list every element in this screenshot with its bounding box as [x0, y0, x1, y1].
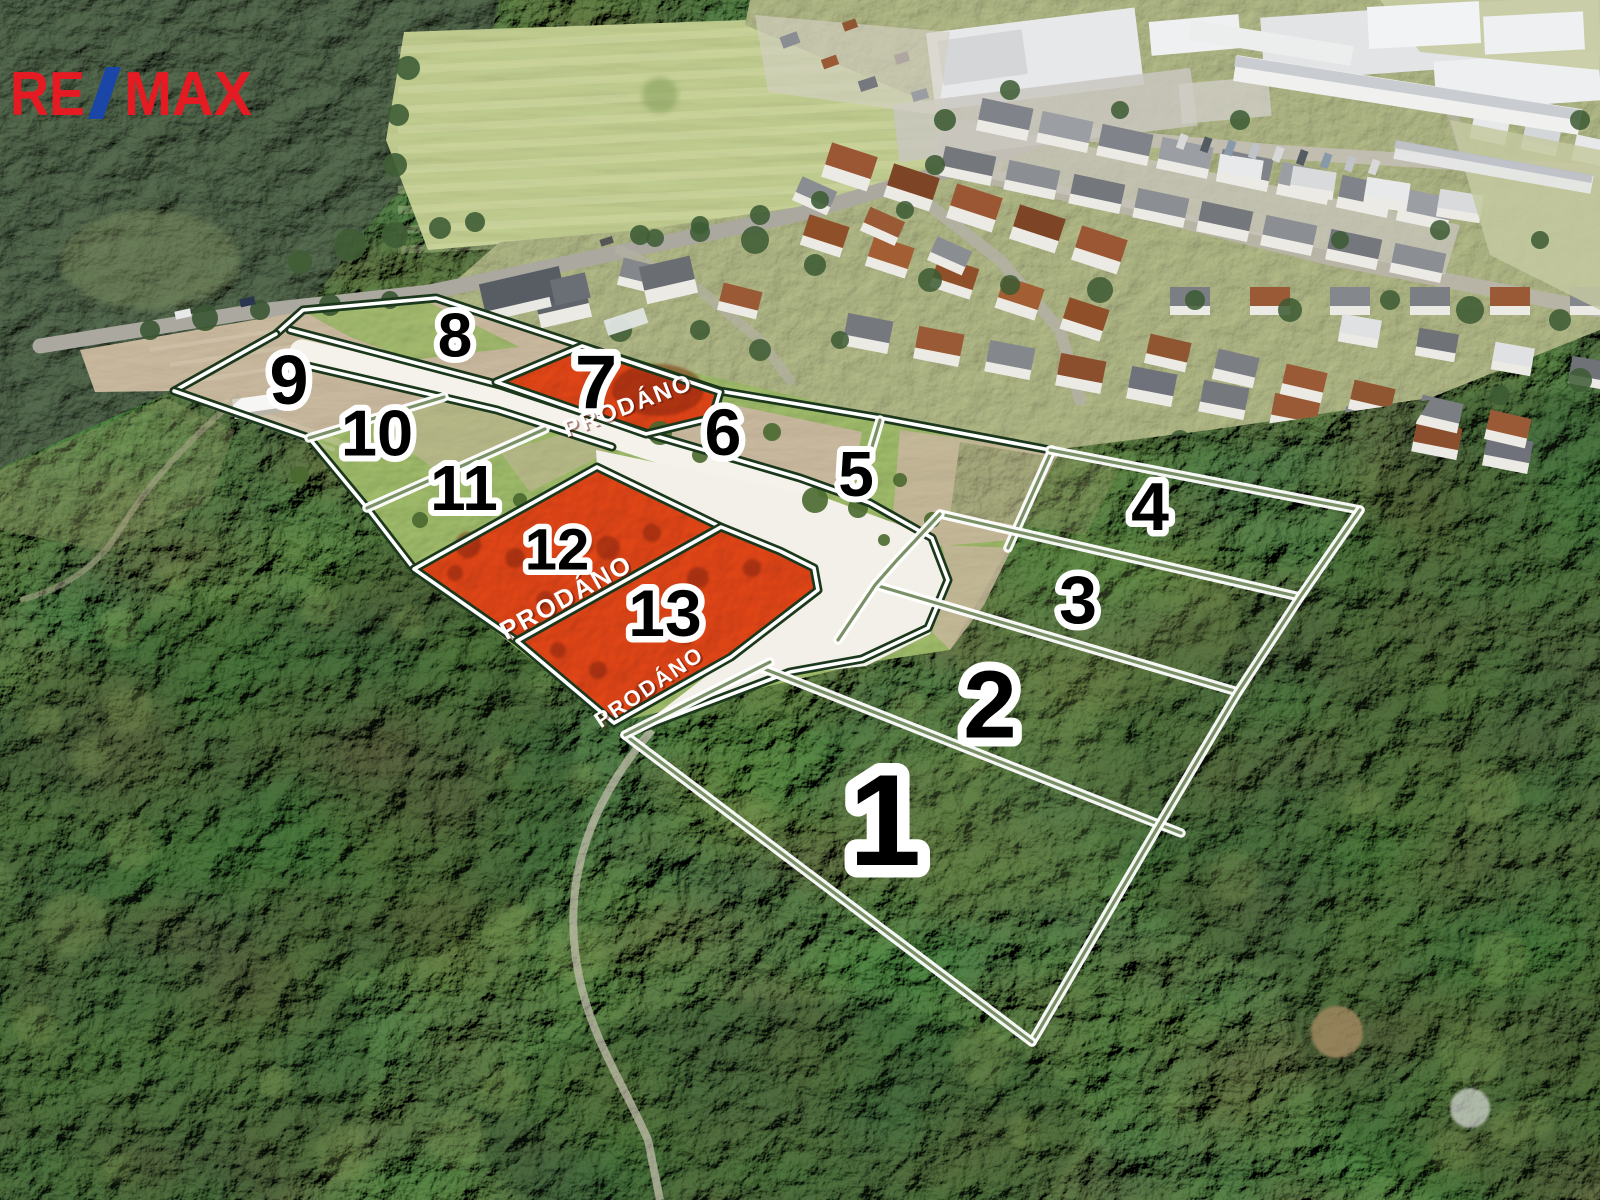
svg-text:13: 13: [628, 576, 701, 650]
svg-text:10: 10: [341, 397, 413, 470]
svg-text:5: 5: [838, 438, 874, 510]
svg-text:RE: RE: [10, 60, 85, 129]
svg-text:6: 6: [705, 395, 742, 469]
svg-text:MAX: MAX: [124, 60, 252, 129]
svg-text:11: 11: [430, 452, 498, 524]
svg-text:8: 8: [438, 302, 472, 371]
svg-text:1: 1: [849, 747, 921, 893]
svg-text:3: 3: [1059, 562, 1097, 638]
svg-text:4: 4: [1131, 469, 1169, 545]
svg-text:2: 2: [963, 652, 1016, 759]
svg-text:9: 9: [270, 341, 309, 419]
